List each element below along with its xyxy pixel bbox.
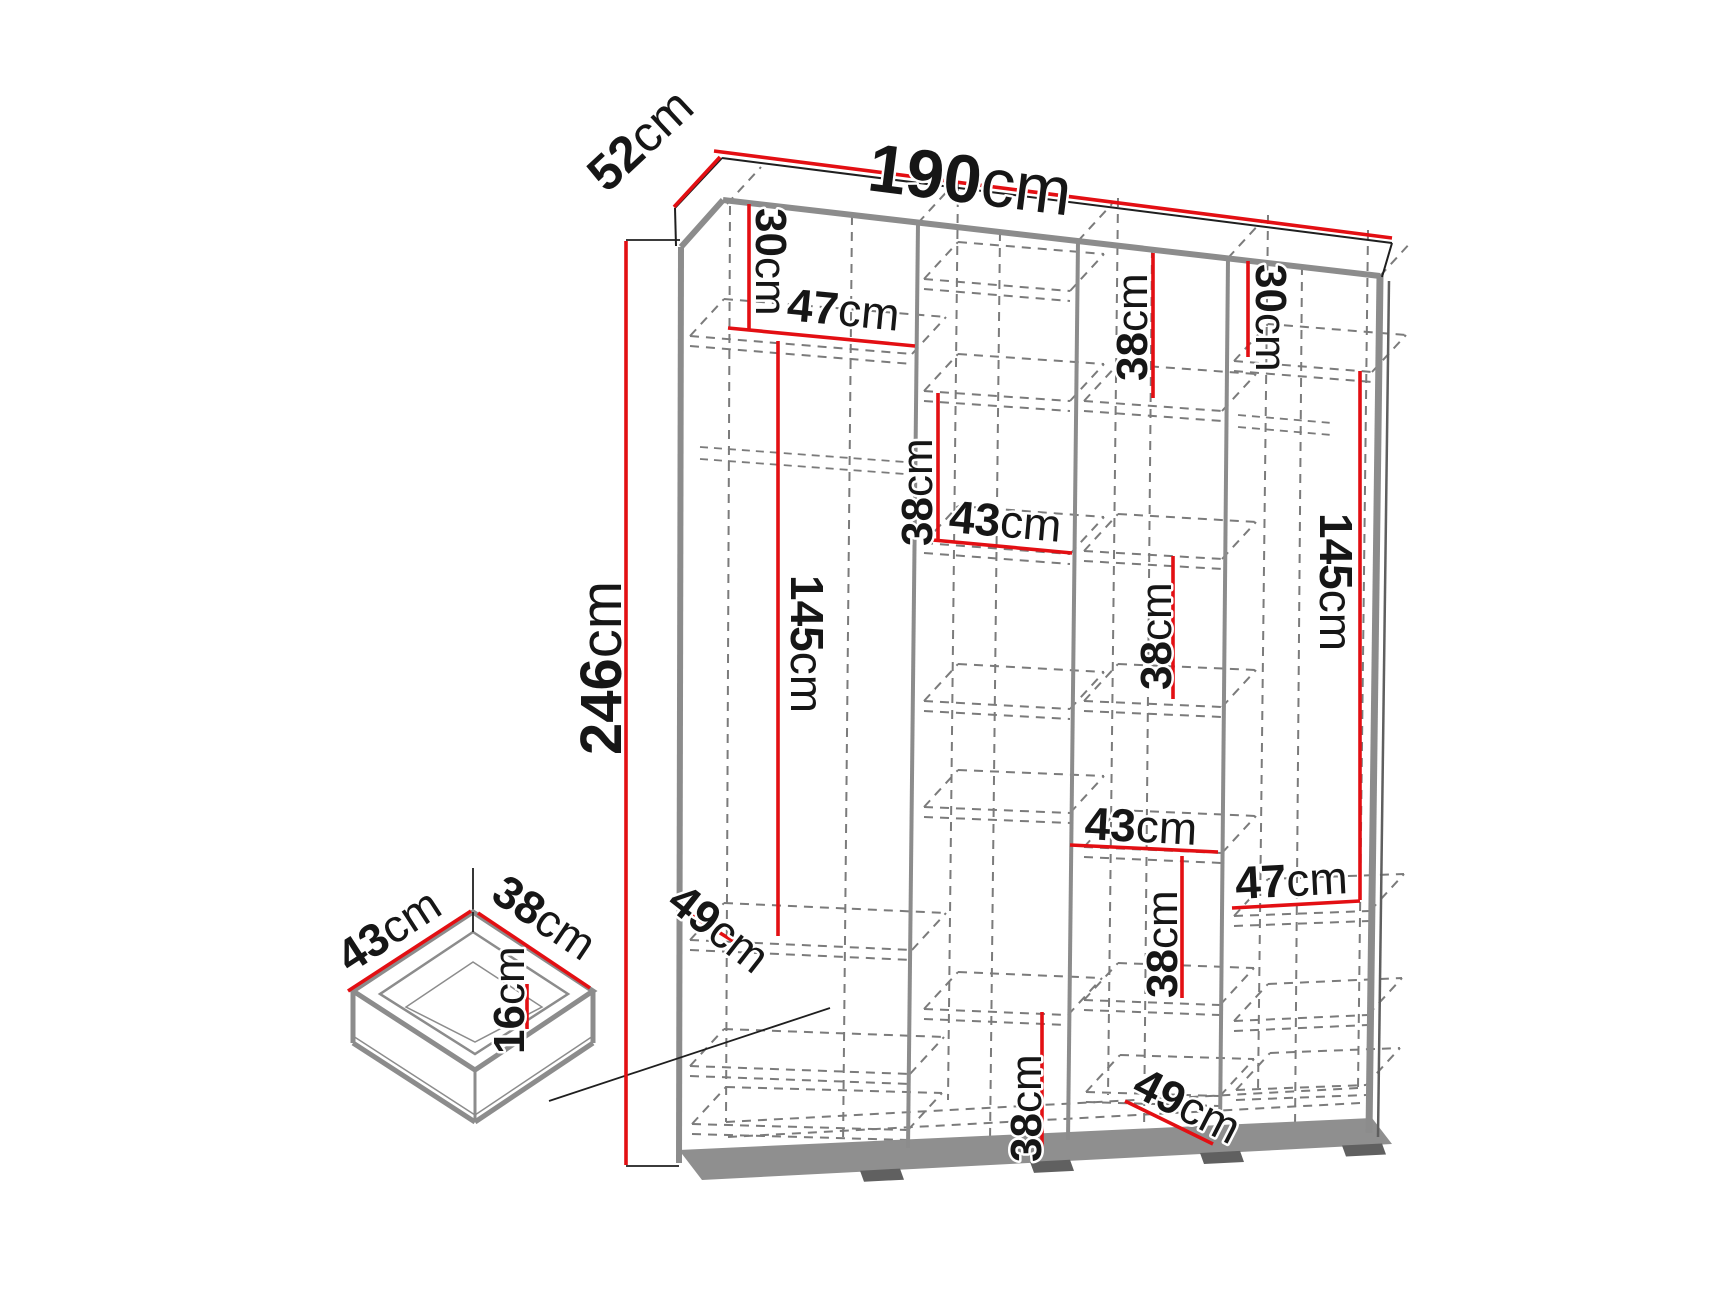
shelf-depth-dashed-line: [912, 913, 946, 950]
back-edge-dashed-line: [990, 232, 1000, 1142]
shelf-thickness-dashed-line: [1234, 371, 1372, 382]
shelf-depth-dashed-line: [924, 242, 958, 279]
shelf-thickness-dashed-line: [1234, 1025, 1368, 1031]
dimension-label-col4-145: 145cm: [1310, 513, 1362, 651]
right-front-edge: [1369, 276, 1380, 1133]
depth-diagonal-dashed-line: [1078, 204, 1112, 241]
shelf-thickness-dashed-line: [692, 1134, 908, 1140]
dimension-label-col1-width-47: 47cm: [785, 278, 902, 341]
plinth-foot: [1342, 1143, 1386, 1156]
hanging-rod-dashed-line: [1238, 415, 1332, 423]
shelf-back-dashed-line: [1270, 1048, 1400, 1053]
shelf-thickness-dashed-line: [690, 1076, 910, 1084]
dimension-label-depth-52: 52cm: [576, 78, 704, 202]
dimension-label-col4-top-30: 30cm: [1246, 264, 1295, 372]
hanging-rod-dashed-line: [700, 447, 905, 462]
shelf-depth-dashed-line: [1220, 968, 1254, 1005]
shelf-depth-dashed-line: [690, 299, 724, 336]
dimension-label-col3-38-top: 38cm: [1108, 273, 1157, 381]
shelf-front-dashed-line: [924, 807, 1070, 813]
shelf-front-dashed-line: [690, 1066, 910, 1074]
shelf-front-dashed-line: [1234, 911, 1370, 916]
shelf-thickness-dashed-line: [924, 289, 1070, 301]
shelf-thickness-dashed-line: [1084, 411, 1222, 421]
shelf-thickness-dashed-line: [1084, 711, 1222, 717]
shelf-back-dashed-line: [1120, 1055, 1254, 1059]
top-left-corner-edge: [681, 200, 723, 247]
shelf-front-dashed-line: [924, 279, 1070, 291]
shelf-thickness-dashed-line: [924, 1019, 1068, 1025]
shelf-front-dashed-line: [924, 701, 1070, 709]
dimension-label-width-190: 190cm: [864, 129, 1076, 230]
shelf-depth-dashed-line: [910, 1037, 944, 1074]
shelf-front-dashed-line: [1236, 1085, 1366, 1090]
shelf-back-dashed-line: [958, 354, 1104, 364]
shelf-thickness-dashed-line: [1234, 921, 1370, 926]
shelf-depth-dashed-line: [924, 770, 958, 807]
shelf-depth-dashed-line: [1234, 984, 1268, 1021]
back-edge-dashed-line: [843, 216, 852, 1147]
shelf-depth-dashed-line: [924, 972, 958, 1009]
shelf-thickness-dashed-line: [1236, 1095, 1366, 1100]
dimension-label-col2-width-43: 43cm: [947, 490, 1064, 552]
shelf-depth-dashed-line: [692, 1087, 726, 1124]
shelf-depth-dashed-line: [1222, 670, 1256, 707]
shelf-thickness-dashed-line: [690, 346, 912, 364]
left-front-edge: [679, 247, 681, 1163]
shelf-depth-dashed-line: [924, 354, 958, 391]
divider-2: [1068, 241, 1078, 1140]
dimension-label-col3-38-mid: 38cm: [1132, 582, 1181, 690]
back-edge-dashed-line: [948, 182, 958, 1100]
shelf-back-dashed-line: [958, 972, 1102, 978]
shelf-front-dashed-line: [924, 1009, 1068, 1015]
shelf-front-dashed-line: [1084, 551, 1222, 559]
shelf-thickness-dashed-line: [1084, 1010, 1220, 1015]
shelf-front-dashed-line: [1084, 401, 1222, 411]
shelf-front-dashed-line: [692, 1124, 908, 1130]
shelf-back-dashed-line: [958, 664, 1104, 672]
divider-1: [908, 223, 918, 1148]
shelf-depth-dashed-line: [1070, 254, 1104, 291]
shelf-front-dashed-line: [924, 391, 1070, 401]
shelf-front-dashed-line: [1084, 701, 1222, 707]
shelf-thickness-dashed-line: [924, 817, 1070, 823]
dimension-label-col3-width-43: 43cm: [1083, 797, 1198, 855]
shelf-depth-dashed-line: [1084, 963, 1118, 1000]
top-slab-outline: [1382, 243, 1392, 277]
dimension-line-depth-52: [674, 157, 720, 207]
wardrobe-dimension-diagram: 190cm52cm246cm30cm47cm145cm49cm38cm43cm3…: [0, 0, 1726, 1295]
dimension-label-height-246: 246cm: [569, 581, 634, 755]
shelf-depth-dashed-line: [1084, 514, 1118, 551]
shelf-thickness-dashed-line: [1084, 561, 1222, 569]
shelf-back-dashed-line: [724, 903, 946, 913]
dimension-label-col2-38-bottom: 38cm: [1002, 1054, 1051, 1162]
plinth-foot: [1200, 1151, 1244, 1164]
dimension-label-col3-38-low: 38cm: [1138, 890, 1187, 998]
shelf-back-dashed-line: [1268, 978, 1402, 984]
shelf-back-dashed-line: [1118, 514, 1256, 522]
hanging-rod-dashed-line: [700, 459, 905, 474]
shelf-thickness-dashed-line: [1084, 857, 1222, 863]
shelf-front-dashed-line: [1084, 1000, 1220, 1005]
back-edge-dashed-line: [1295, 266, 1302, 1129]
shelf-depth-dashed-line: [1086, 1055, 1120, 1092]
plinth-foot: [860, 1169, 904, 1182]
shelf-thickness-dashed-line: [924, 401, 1070, 411]
shelf-front-dashed-line: [1234, 1015, 1368, 1021]
back-edge-dashed-line: [726, 206, 730, 1122]
shelf-depth-dashed-line: [1222, 816, 1256, 853]
shelf-thickness-dashed-line: [924, 711, 1070, 719]
shelf-depth-dashed-line: [690, 1029, 724, 1066]
shelf-back-dashed-line: [958, 770, 1104, 776]
dimension-label-col4-width-47: 47cm: [1234, 851, 1349, 909]
dimension-label-col2-38-top: 38cm: [893, 438, 942, 546]
dimension-label-drawer-height-16: 16cm: [485, 946, 534, 1054]
dimension-label-col1-145: 145cm: [781, 575, 833, 713]
wardrobe-dimension-diagram-page: 190cm52cm246cm30cm47cm145cm49cm38cm43cm3…: [0, 0, 1726, 1295]
hanging-rod-dashed-line: [1238, 427, 1332, 435]
